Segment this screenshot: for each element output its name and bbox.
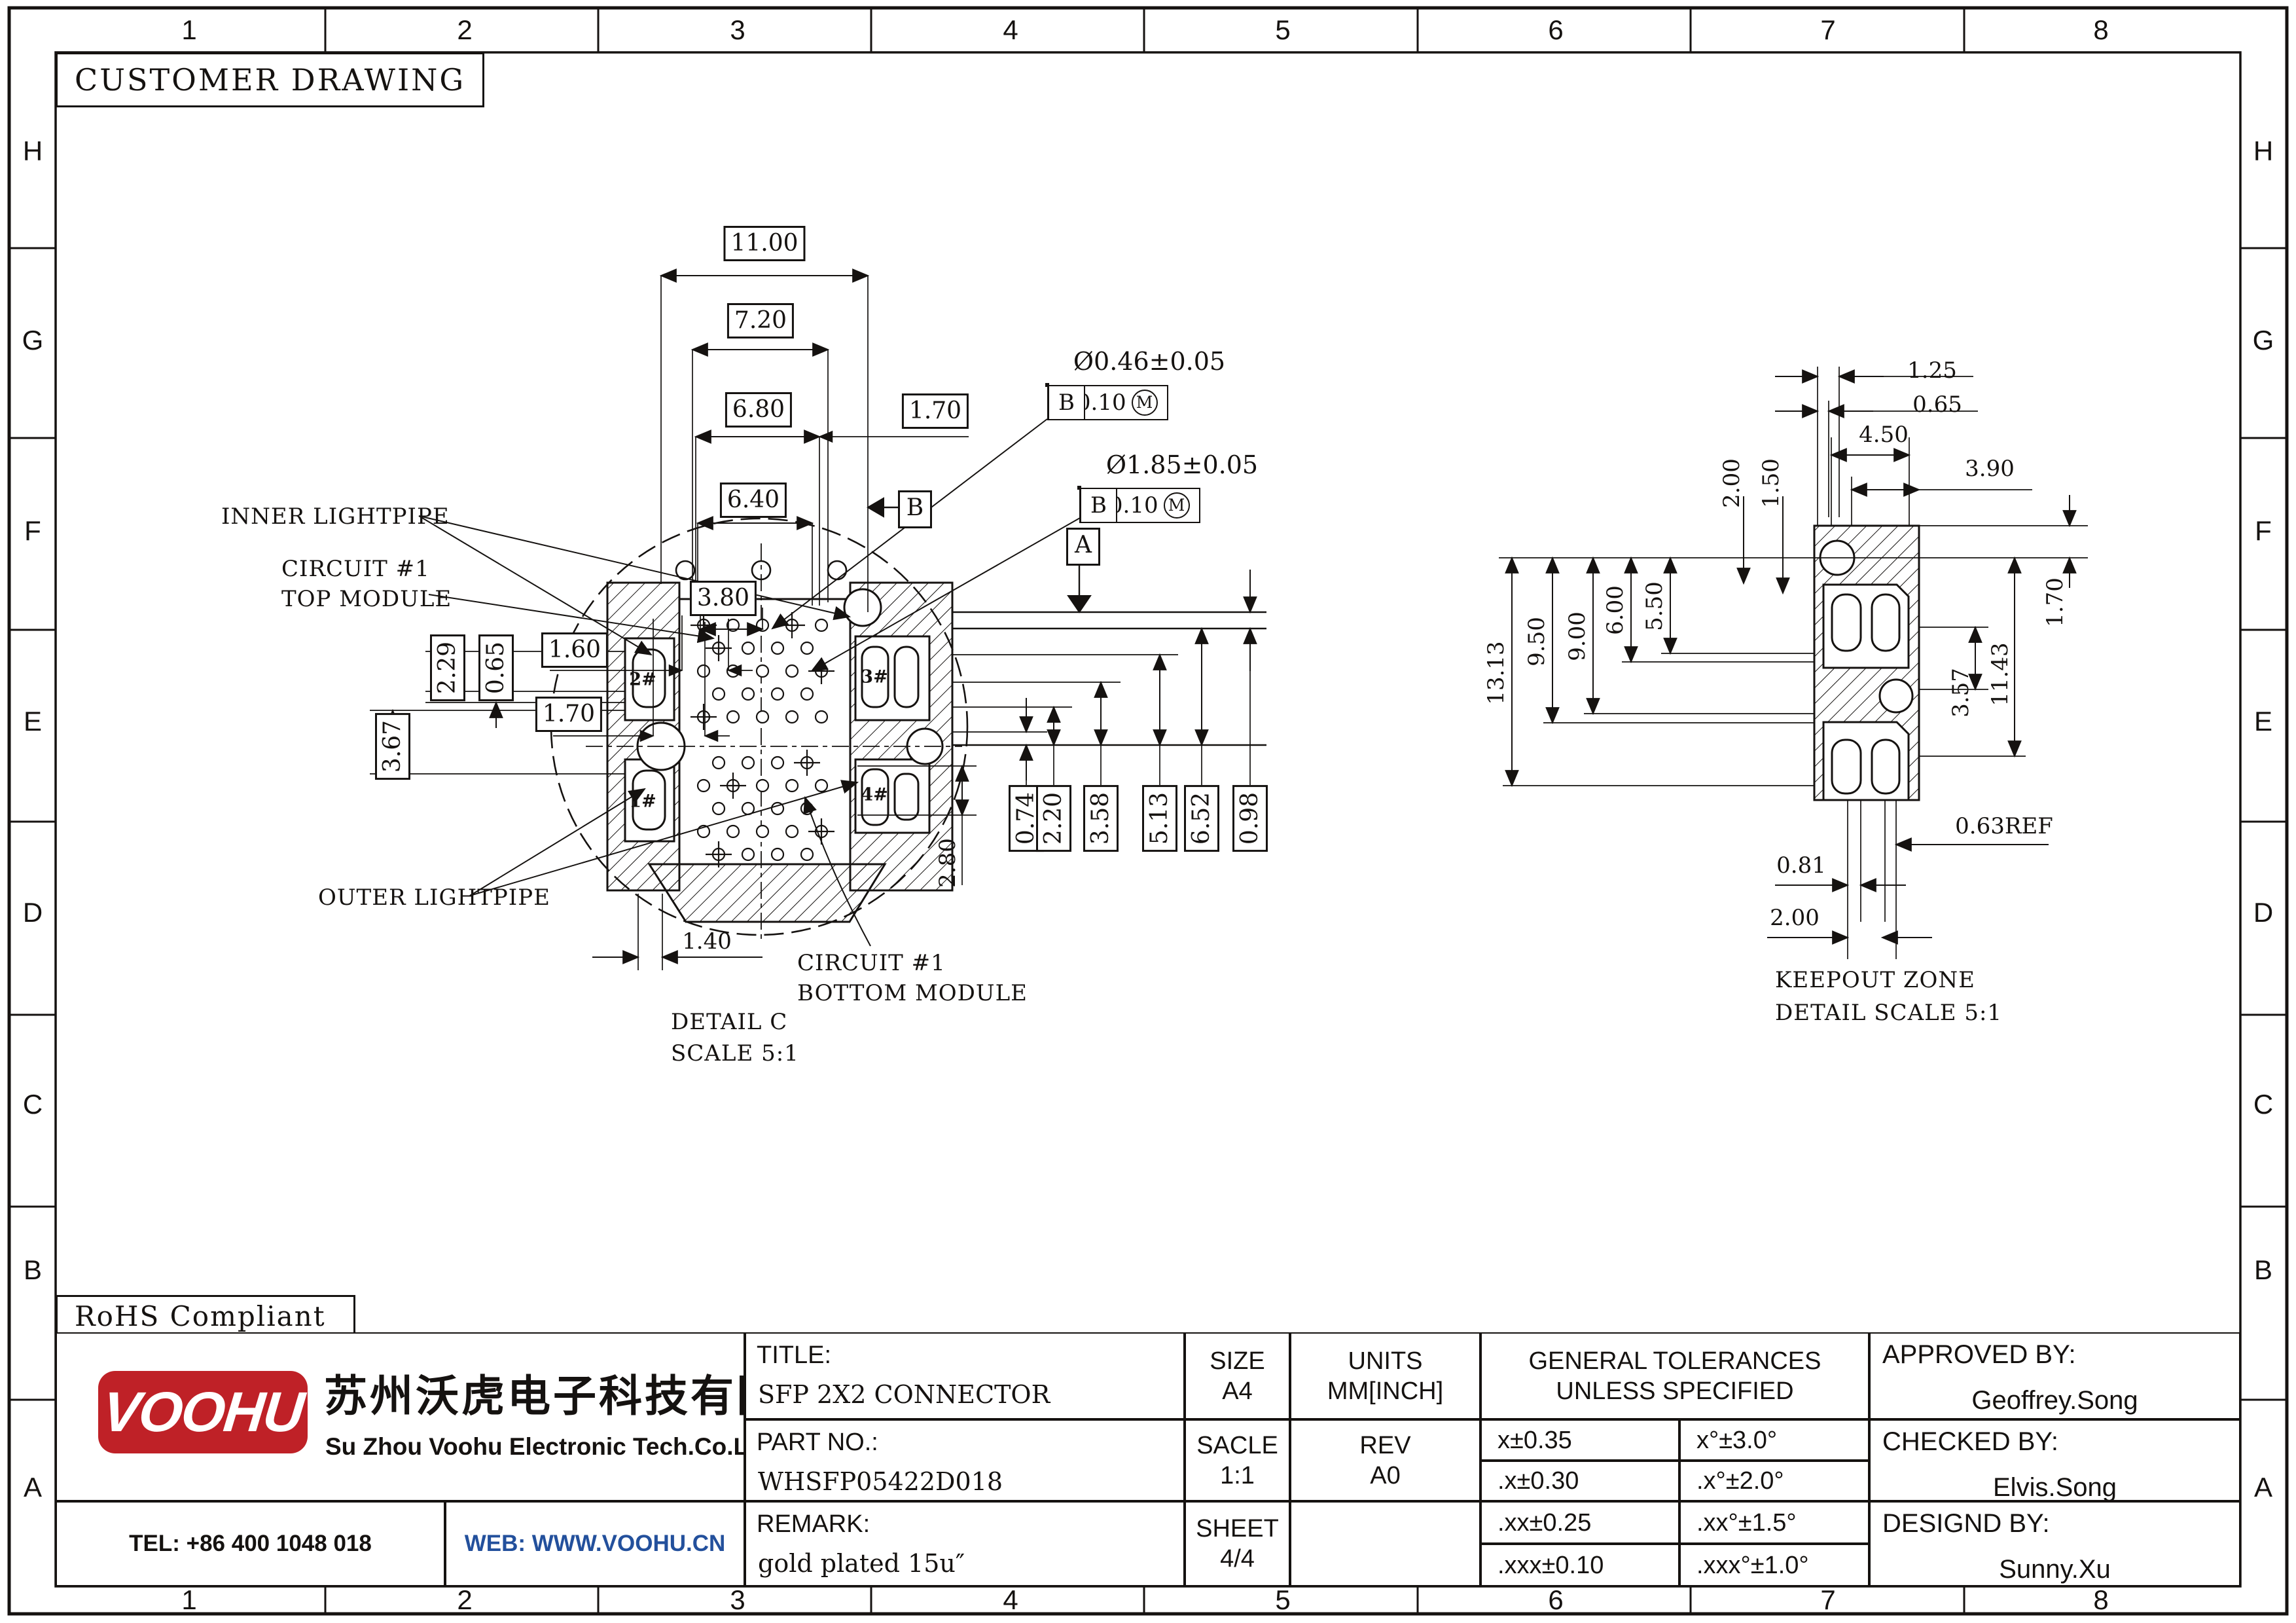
remark-label: REMARK: bbox=[746, 1503, 1183, 1546]
kz-dim-3-57: 3.57 bbox=[1948, 668, 1974, 718]
company-tel: TEL: +86 400 1048 018 bbox=[129, 1531, 372, 1557]
title-value: SFP 2X2 CONNECTOR bbox=[746, 1377, 1183, 1412]
fcf1-frame: ⌖ Ø0.10M A B bbox=[1045, 383, 1049, 387]
col-label-bot-2: 2 bbox=[457, 1586, 472, 1614]
row-label-left-e: E bbox=[24, 708, 42, 735]
col-label-bot-4: 4 bbox=[1003, 1586, 1018, 1614]
pad-label-3: 3# bbox=[861, 668, 888, 686]
col-label-top-2: 2 bbox=[457, 16, 472, 44]
pad-label-4: 4# bbox=[861, 786, 888, 804]
pad-label-1: 1# bbox=[629, 793, 656, 811]
row-label-right-a: A bbox=[2254, 1474, 2272, 1501]
col-label-bot-6: 6 bbox=[1548, 1586, 1563, 1614]
dim-0-65: 0.65 bbox=[478, 634, 514, 701]
caption-keepout-zone: KEEPOUT ZONE bbox=[1775, 966, 1975, 994]
col-label-top-6: 6 bbox=[1548, 16, 1563, 44]
dim-1-70-left: 1.70 bbox=[535, 697, 602, 732]
projection-symbol-cell bbox=[1290, 1501, 1480, 1586]
datum-flag-a: A bbox=[1066, 528, 1100, 566]
sheet-cell: SHEET 4/4 bbox=[1185, 1501, 1290, 1586]
row-label-left-b: B bbox=[24, 1256, 42, 1284]
rev-value: A0 bbox=[1370, 1461, 1400, 1491]
kz-dim-4-50: 4.50 bbox=[1859, 422, 1909, 448]
dim-1-40: 1.40 bbox=[682, 928, 732, 955]
dim-2-80: 2.80 bbox=[935, 838, 961, 888]
dim-6-40: 6.40 bbox=[720, 483, 787, 518]
web-cell: WEB: WWW.VOOHU.CN bbox=[445, 1501, 745, 1586]
remark-value: gold plated 15u″ bbox=[746, 1546, 1183, 1581]
tol-dxdeg: .x°±2.0° bbox=[1679, 1461, 1869, 1501]
sheet-label: SHEET bbox=[1196, 1514, 1279, 1544]
caption-detail-c-scale: SCALE 5:1 bbox=[671, 1040, 799, 1067]
dim-2-20: 2.20 bbox=[1036, 785, 1071, 852]
row-label-left-f: F bbox=[24, 517, 41, 545]
sheet-value: 4/4 bbox=[1220, 1544, 1255, 1574]
row-label-right-h: H bbox=[2253, 137, 2273, 165]
kz-dim-6-00: 6.00 bbox=[1602, 585, 1628, 635]
dim-3-67: 3.67 bbox=[375, 713, 410, 780]
tolerance-header-2: UNLESS SPECIFIED bbox=[1556, 1376, 1793, 1406]
dim-5-13: 5.13 bbox=[1142, 785, 1177, 852]
remark-cell: REMARK: gold plated 15u″ bbox=[745, 1501, 1185, 1586]
keepout-geometry bbox=[1814, 526, 1919, 800]
part-no-cell: PART NO.: WHSFP05422D018 bbox=[745, 1419, 1185, 1501]
row-label-left-c: C bbox=[23, 1091, 43, 1118]
col-label-top-8: 8 bbox=[2093, 16, 2108, 44]
col-label-bot-1: 1 bbox=[181, 1586, 196, 1614]
tol-dxxx-value: .xxx±0.10 bbox=[1498, 1552, 1604, 1578]
tol-xdeg: x°±3.0° bbox=[1679, 1419, 1869, 1461]
rohs-stamp: RoHS Compliant bbox=[56, 1295, 355, 1337]
caption-keepout-scale: DETAIL SCALE 5:1 bbox=[1775, 999, 2002, 1027]
kz-dim-0-63ref: 0.63REF bbox=[1955, 813, 2053, 839]
approved-cell: APPROVED BY: Geoffrey.Song bbox=[1869, 1332, 2240, 1419]
fcf2-size: Ø1.85±0.05 bbox=[1106, 452, 1258, 478]
drawing-sheet: 1 2 3 4 5 6 7 8 1 2 3 4 5 6 7 8 H G F E … bbox=[0, 0, 2296, 1623]
tol-dxxx: .xxx±0.10 bbox=[1480, 1544, 1679, 1586]
kz-dim-2-00-bottom: 2.00 bbox=[1770, 905, 1820, 931]
row-label-left-h: H bbox=[23, 137, 43, 165]
kz-dim-2-00-top: 2.00 bbox=[1719, 458, 1745, 508]
company-logo: VOOHU bbox=[98, 1371, 308, 1453]
row-label-right-c: C bbox=[2253, 1091, 2273, 1118]
tol-dxdeg-value: .x°±2.0° bbox=[1696, 1468, 1784, 1494]
col-label-top-4: 4 bbox=[1003, 16, 1018, 44]
dim-1-70-right: 1.70 bbox=[902, 393, 969, 429]
col-label-bot-8: 8 bbox=[2093, 1586, 2108, 1614]
units-label: UNITS bbox=[1348, 1346, 1423, 1376]
fcf1-size: Ø0.46±0.05 bbox=[1073, 348, 1225, 374]
kz-dim-9-00: 9.00 bbox=[1564, 611, 1590, 661]
tol-dxxdeg-value: .xx°±1.5° bbox=[1696, 1510, 1797, 1536]
tol-dxxxdeg-value: .xxx°±1.0° bbox=[1696, 1552, 1809, 1578]
designed-name: Sunny.Xu bbox=[1871, 1554, 2239, 1585]
customer-drawing-stamp: CUSTOMER DRAWING bbox=[56, 52, 484, 107]
kz-dim-11-43: 11.43 bbox=[1987, 642, 2013, 706]
row-label-right-d: D bbox=[2253, 899, 2273, 926]
dim-3-80: 3.80 bbox=[690, 581, 757, 616]
tol-dxx-value: .xx±0.25 bbox=[1498, 1510, 1591, 1536]
kz-dim-3-90: 3.90 bbox=[1965, 456, 2015, 482]
col-label-bot-5: 5 bbox=[1275, 1586, 1290, 1614]
tol-dx: .x±0.30 bbox=[1480, 1461, 1679, 1501]
kz-dim-1-50: 1.50 bbox=[1758, 458, 1784, 508]
tol-x-value: x±0.35 bbox=[1498, 1427, 1572, 1453]
tel-cell: TEL: +86 400 1048 018 bbox=[56, 1501, 445, 1586]
kz-dim-0-65: 0.65 bbox=[1912, 392, 1962, 418]
dim-2-29: 2.29 bbox=[430, 634, 465, 701]
part-no-label: PART NO.: bbox=[746, 1421, 1183, 1464]
detail-c-geometry bbox=[551, 519, 967, 943]
rev-cell: REV A0 bbox=[1290, 1419, 1480, 1501]
units-cell: UNITS MM[INCH] bbox=[1290, 1332, 1480, 1419]
row-label-left-a: A bbox=[24, 1474, 42, 1501]
rev-label: REV bbox=[1359, 1431, 1410, 1461]
col-label-top-3: 3 bbox=[730, 16, 745, 44]
checked-name: Elvis.Song bbox=[1871, 1472, 2239, 1503]
dim-11-00: 11.00 bbox=[723, 226, 805, 261]
row-label-right-e: E bbox=[2254, 708, 2272, 735]
approved-name: Geoffrey.Song bbox=[1871, 1385, 2239, 1416]
dim-0-98: 0.98 bbox=[1232, 785, 1268, 852]
size-cell: SIZE A4 bbox=[1185, 1332, 1290, 1419]
row-label-right-b: B bbox=[2254, 1256, 2272, 1284]
caption-detail-c: DETAIL C bbox=[671, 1008, 787, 1036]
kz-dim-1-70: 1.70 bbox=[2042, 577, 2068, 627]
kz-dim-5-50: 5.50 bbox=[1641, 581, 1668, 631]
fcf2-datum-b: B bbox=[1079, 488, 1117, 523]
scale-label: SACLE bbox=[1196, 1431, 1278, 1461]
col-label-top-5: 5 bbox=[1275, 16, 1290, 44]
row-label-right-f: F bbox=[2255, 517, 2272, 545]
size-value: A4 bbox=[1222, 1376, 1252, 1406]
dim-1-60: 1.60 bbox=[541, 632, 608, 668]
designed-cell: DESIGND BY:Sunny.Xu bbox=[1869, 1501, 2240, 1586]
datum-flag-b: B bbox=[898, 490, 932, 528]
kz-dim-1-25: 1.25 bbox=[1907, 357, 1957, 384]
row-label-left-d: D bbox=[23, 899, 43, 926]
scale-cell: SACLE 1:1 bbox=[1185, 1419, 1290, 1501]
col-label-top-1: 1 bbox=[181, 16, 196, 44]
dim-6-52: 6.52 bbox=[1184, 785, 1219, 852]
kz-dim-13-13: 13.13 bbox=[1483, 641, 1509, 704]
dim-6-80: 6.80 bbox=[725, 392, 792, 428]
label-circuit1-bottom: CIRCUIT #1 bbox=[797, 949, 946, 977]
tol-dxxdeg: .xx°±1.5° bbox=[1679, 1501, 1869, 1544]
mmc-symbol: M bbox=[1132, 390, 1158, 416]
tol-dx-value: .x±0.30 bbox=[1498, 1468, 1579, 1494]
col-label-bot-3: 3 bbox=[730, 1586, 745, 1614]
logo-text: VOOHU bbox=[100, 1384, 306, 1440]
label-outer-lightpipe: OUTER LIGHTPIPE bbox=[318, 884, 550, 911]
title-label: TITLE: bbox=[746, 1334, 1183, 1377]
rohs-text: RoHS Compliant bbox=[75, 1300, 326, 1332]
kz-dim-0-81: 0.81 bbox=[1776, 852, 1826, 879]
designed-label: DESIGND BY: bbox=[1871, 1503, 2239, 1544]
checked-label: CHECKED BY: bbox=[1871, 1421, 2239, 1463]
company-name-en: Su Zhou Voohu Electronic Tech.Co.Ltd bbox=[325, 1434, 771, 1460]
mmc-symbol: M bbox=[1164, 492, 1190, 519]
checked-cell: CHECKED BY: Elvis.Song bbox=[1869, 1419, 2240, 1501]
part-no-value: WHSFP05422D018 bbox=[746, 1464, 1183, 1499]
fcf2-frame: ⌖ Ø0.10M A B bbox=[1077, 486, 1081, 490]
dim-7-20: 7.20 bbox=[727, 303, 794, 338]
col-label-bot-7: 7 bbox=[1820, 1586, 1835, 1614]
units-value: MM[INCH] bbox=[1327, 1376, 1443, 1406]
tolerance-header-cell: GENERAL TOLERANCES UNLESS SPECIFIED bbox=[1480, 1332, 1869, 1419]
approved-label: APPROVED BY: bbox=[1871, 1334, 2239, 1376]
company-web: WEB: WWW.VOOHU.CN bbox=[465, 1531, 726, 1557]
label-top-module: TOP MODULE bbox=[281, 585, 452, 613]
title-cell: TITLE: SFP 2X2 CONNECTOR bbox=[745, 1332, 1185, 1419]
tol-dxxxdeg: .xxx°±1.0° bbox=[1679, 1544, 1869, 1586]
dim-3-58: 3.58 bbox=[1083, 785, 1119, 852]
pad-label-2: 2# bbox=[629, 671, 656, 689]
size-label: SIZE bbox=[1210, 1346, 1265, 1376]
tolerance-header-1: GENERAL TOLERANCES bbox=[1528, 1346, 1821, 1376]
tol-dxx: .xx±0.25 bbox=[1480, 1501, 1679, 1544]
tol-xdeg-value: x°±3.0° bbox=[1696, 1427, 1777, 1453]
customer-drawing-text: CUSTOMER DRAWING bbox=[75, 62, 465, 98]
label-bottom-module: BOTTOM MODULE bbox=[797, 979, 1028, 1007]
scale-value: 1:1 bbox=[1220, 1461, 1255, 1491]
tol-x: x±0.35 bbox=[1480, 1419, 1679, 1461]
fcf1-datum-b: B bbox=[1047, 385, 1085, 420]
label-inner-lightpipe: INNER LIGHTPIPE bbox=[221, 503, 450, 530]
row-label-left-g: G bbox=[22, 327, 44, 354]
label-circuit1-top: CIRCUIT #1 bbox=[281, 555, 430, 583]
row-label-right-g: G bbox=[2253, 327, 2274, 354]
kz-dim-9-50: 9.50 bbox=[1524, 617, 1550, 666]
col-label-top-7: 7 bbox=[1820, 16, 1835, 44]
